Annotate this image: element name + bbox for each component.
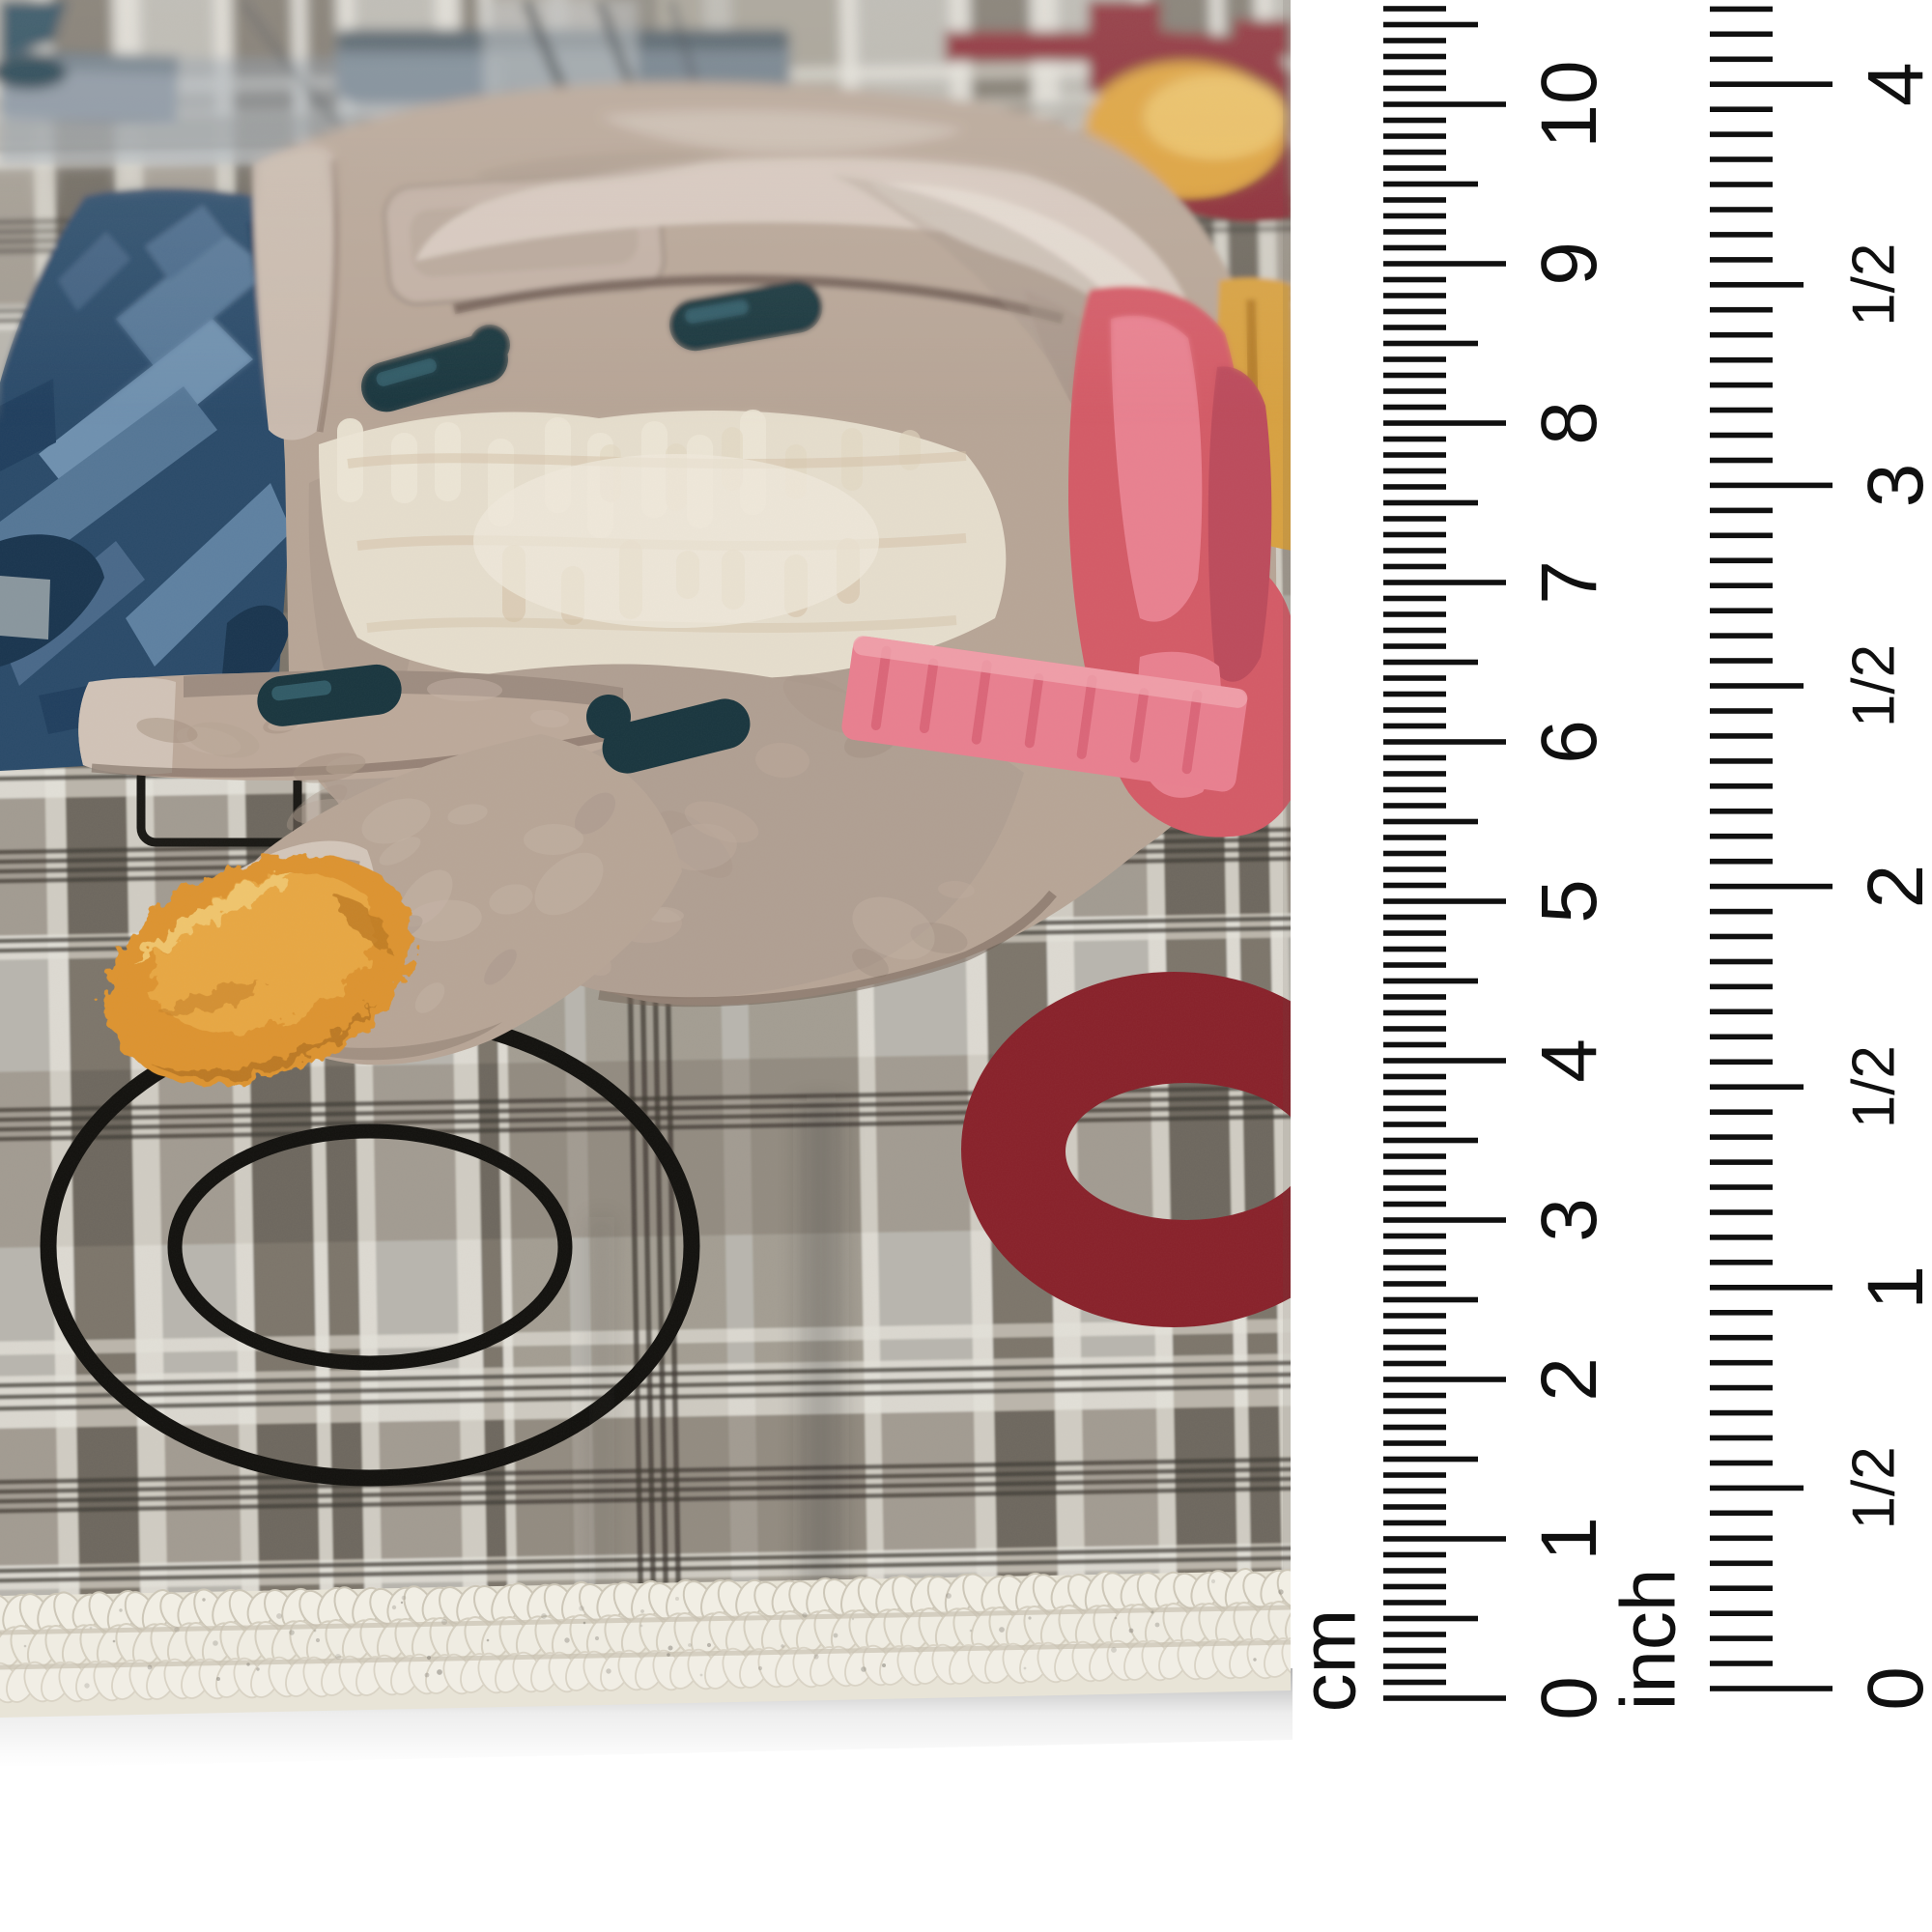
svg-text:1/2: 1/2 bbox=[1840, 243, 1907, 327]
svg-text:0: 0 bbox=[1525, 1676, 1613, 1720]
svg-text:inch: inch bbox=[1605, 1569, 1690, 1711]
svg-text:4: 4 bbox=[1525, 1038, 1613, 1083]
svg-text:2: 2 bbox=[1525, 1357, 1613, 1402]
svg-text:9: 9 bbox=[1525, 241, 1613, 286]
svg-text:2: 2 bbox=[1852, 865, 1932, 909]
svg-text:0: 0 bbox=[1852, 1666, 1932, 1711]
svg-text:1: 1 bbox=[1525, 1517, 1613, 1561]
svg-text:7: 7 bbox=[1525, 560, 1613, 605]
svg-text:5: 5 bbox=[1525, 879, 1613, 923]
svg-text:3: 3 bbox=[1852, 464, 1932, 508]
svg-text:1/2: 1/2 bbox=[1840, 1446, 1907, 1529]
svg-text:6: 6 bbox=[1525, 720, 1613, 764]
svg-text:cm: cm bbox=[1285, 1609, 1371, 1713]
svg-text:1/2: 1/2 bbox=[1840, 1045, 1907, 1128]
svg-text:10: 10 bbox=[1525, 60, 1613, 148]
svg-text:4: 4 bbox=[1852, 62, 1932, 106]
svg-text:1: 1 bbox=[1852, 1265, 1932, 1310]
svg-text:3: 3 bbox=[1525, 1198, 1613, 1242]
svg-text:1/2: 1/2 bbox=[1840, 644, 1907, 727]
svg-text:8: 8 bbox=[1525, 401, 1613, 445]
